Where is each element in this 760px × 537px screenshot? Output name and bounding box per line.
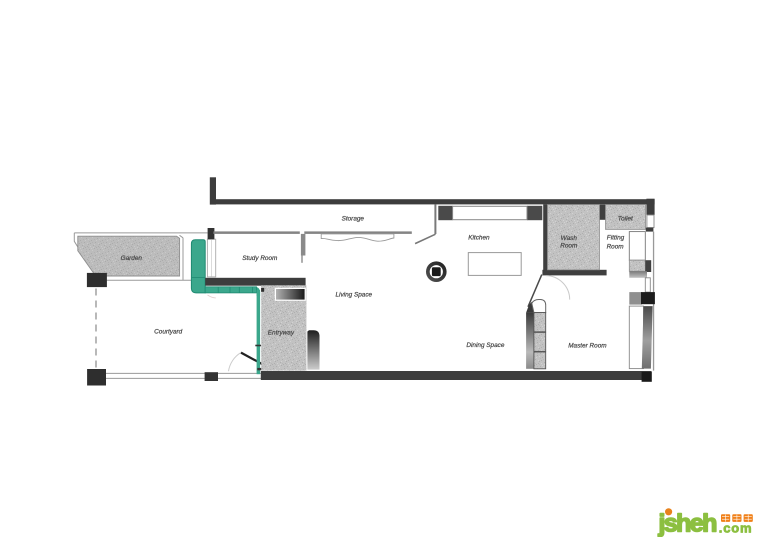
svg-text:Storage: Storage (342, 216, 365, 223)
svg-text:Dining Space: Dining Space (466, 342, 504, 349)
svg-text:.com: .com (719, 520, 753, 535)
svg-text:Room: Room (560, 242, 578, 249)
svg-text:Study Room: Study Room (242, 255, 278, 262)
svg-text:Toilet: Toilet (618, 216, 633, 223)
svg-text:Entryway: Entryway (268, 330, 295, 337)
svg-text:Fitting: Fitting (607, 235, 625, 242)
svg-text:Kitchen: Kitchen (468, 234, 490, 241)
svg-text:Wash: Wash (561, 235, 578, 242)
svg-text:Courtyard: Courtyard (154, 328, 183, 335)
svg-text:Garden: Garden (121, 255, 143, 262)
svg-text:Master Room: Master Room (568, 343, 607, 350)
svg-text:Living Space: Living Space (336, 291, 373, 298)
svg-text:Room: Room (607, 243, 625, 250)
